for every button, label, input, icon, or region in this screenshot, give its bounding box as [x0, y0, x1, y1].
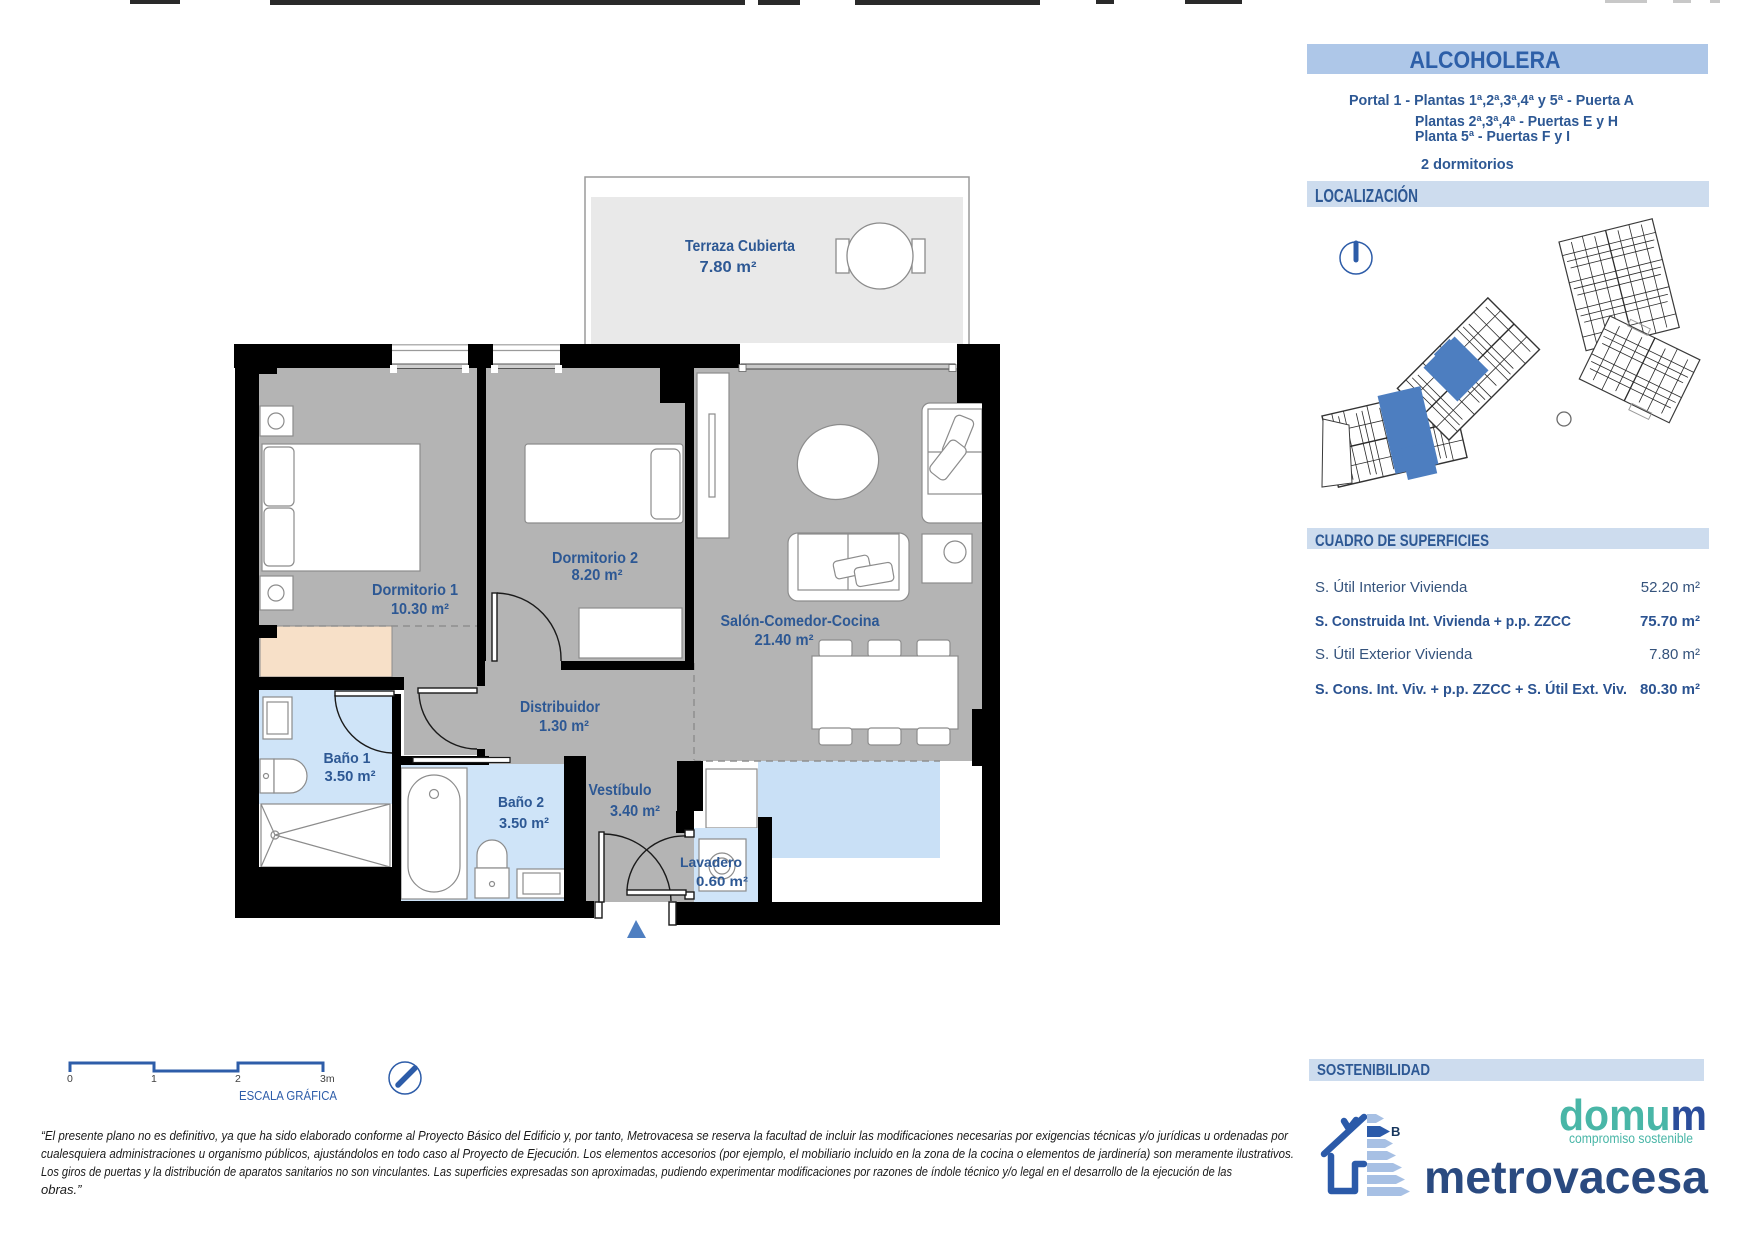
svg-text:LOCALIZACIÓN: LOCALIZACIÓN — [1315, 185, 1418, 206]
svg-text:compromiso sostenible: compromiso sostenible — [1569, 1131, 1693, 1146]
svg-text:“El presente plano no es defin: “El presente plano no es definitivo, ya … — [41, 1128, 1289, 1143]
svg-text:obras.”: obras.” — [41, 1182, 82, 1197]
svg-text:1.30 m²: 1.30 m² — [539, 718, 589, 735]
svg-text:Planta 5ª - Puertas F y I: Planta 5ª - Puertas F y I — [1415, 129, 1570, 145]
svg-text:8.20 m²: 8.20 m² — [572, 567, 623, 584]
svg-text:ESCALA GRÁFICA: ESCALA GRÁFICA — [239, 1088, 337, 1103]
svg-text:Dormitorio 1: Dormitorio 1 — [372, 582, 458, 599]
svg-text:3.50 m²: 3.50 m² — [325, 768, 376, 785]
svg-text:7.80 m²: 7.80 m² — [1649, 646, 1700, 663]
svg-text:7.80 m²: 7.80 m² — [700, 259, 757, 276]
svg-text:B: B — [1391, 1124, 1400, 1139]
svg-text:Dormitorio 2: Dormitorio 2 — [552, 550, 638, 567]
svg-text:52.20 m²: 52.20 m² — [1641, 579, 1700, 596]
svg-text:metrovacesa: metrovacesa — [1424, 1151, 1708, 1203]
svg-text:S. Útil Interior Vivienda: S. Útil Interior Vivienda — [1315, 579, 1468, 596]
svg-text:10.30 m²: 10.30 m² — [391, 601, 449, 618]
svg-text:Plantas 2ª,3ª,4ª - Puertas E y: Plantas 2ª,3ª,4ª - Puertas E y H — [1415, 114, 1618, 130]
svg-text:S. Cons. Int. Viv. + p.p. ZZCC: S. Cons. Int. Viv. + p.p. ZZCC + S. Útil… — [1315, 680, 1627, 698]
svg-text:0: 0 — [67, 1073, 73, 1085]
svg-text:Portal 1 - Plantas 1ª,2ª,3ª,4ª: Portal 1 - Plantas 1ª,2ª,3ª,4ª y 5ª - Pu… — [1349, 93, 1635, 109]
svg-text:Los giros de puertas y la dist: Los giros de puertas y la distribución d… — [41, 1164, 1232, 1179]
svg-text:Baño 1: Baño 1 — [324, 750, 371, 767]
svg-text:3m: 3m — [320, 1073, 335, 1085]
svg-text:CUADRO DE SUPERFICIES: CUADRO DE SUPERFICIES — [1315, 531, 1489, 550]
svg-text:Vestíbulo: Vestíbulo — [589, 782, 652, 799]
svg-text:Distribuidor: Distribuidor — [520, 699, 600, 716]
svg-text:ALCOHOLERA: ALCOHOLERA — [1410, 47, 1561, 74]
svg-text:1: 1 — [151, 1073, 157, 1085]
svg-text:0.60 m²: 0.60 m² — [696, 874, 749, 889]
svg-text:3.50 m²: 3.50 m² — [499, 815, 549, 832]
svg-text:cualesquiera administraciones: cualesquiera administraciones u organism… — [41, 1146, 1294, 1161]
svg-text:Baño 2: Baño 2 — [498, 794, 544, 811]
svg-text:2 dormitorios: 2 dormitorios — [1421, 157, 1514, 173]
svg-text:S. Útil Exterior Vivienda: S. Útil Exterior Vivienda — [1315, 646, 1473, 663]
svg-text:2: 2 — [235, 1073, 241, 1085]
svg-text:Terraza Cubierta: Terraza Cubierta — [685, 238, 795, 255]
svg-text:3.40 m²: 3.40 m² — [610, 803, 660, 820]
svg-text:80.30 m²: 80.30 m² — [1640, 681, 1700, 698]
svg-text:SOSTENIBILIDAD: SOSTENIBILIDAD — [1317, 1062, 1430, 1079]
svg-text:Salón-Comedor-Cocina: Salón-Comedor-Cocina — [721, 613, 880, 630]
svg-text:21.40 m²: 21.40 m² — [755, 632, 814, 649]
svg-text:S. Construida Int. Vivienda +: S. Construida Int. Vivienda + p.p. ZZCC — [1315, 613, 1571, 630]
svg-text:Lavadero: Lavadero — [680, 855, 742, 870]
svg-text:75.70 m²: 75.70 m² — [1640, 613, 1700, 630]
